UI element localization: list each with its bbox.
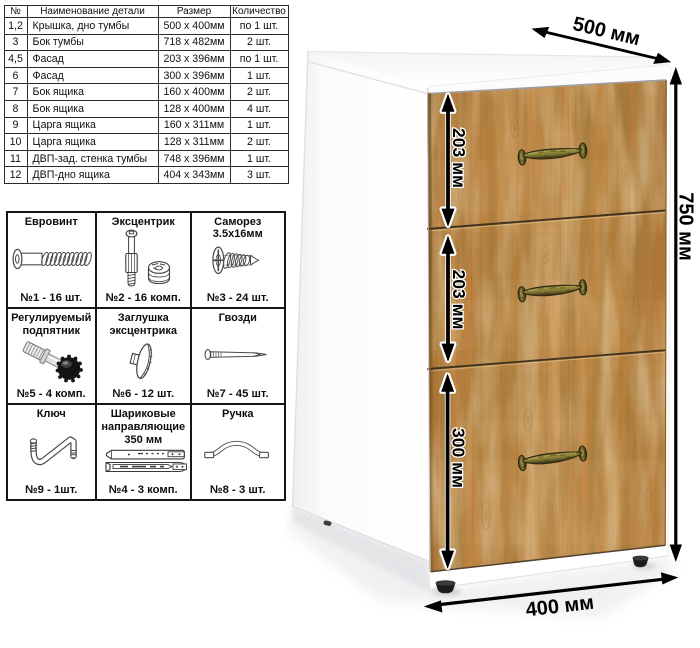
svg-text:203 мм: 203 мм: [449, 270, 469, 330]
svg-text:500 мм: 500 мм: [571, 13, 643, 50]
svg-text:203 мм: 203 мм: [449, 128, 469, 188]
svg-text:300 мм: 300 мм: [449, 428, 469, 488]
svg-text:750 мм: 750 мм: [675, 192, 697, 261]
